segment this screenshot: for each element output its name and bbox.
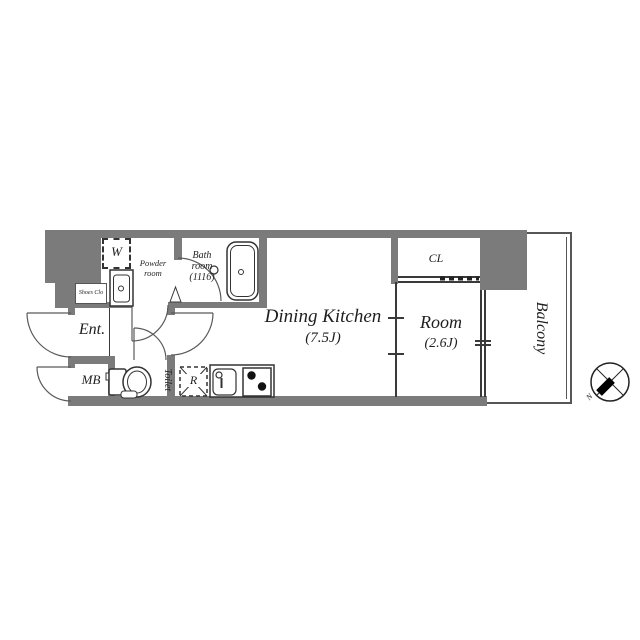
bath-line3: (1116) <box>181 272 223 283</box>
dining-kitchen-size: (7.5J) <box>223 330 423 347</box>
wall-dk-room <box>391 238 398 284</box>
wall-mb-right <box>108 364 115 398</box>
wall-ent-mb-divider <box>68 356 115 364</box>
bath-line1: Bath <box>181 250 223 261</box>
balcony-edge-top <box>527 232 572 234</box>
refrigerator-label: R <box>186 374 201 387</box>
dining-kitchen-name: Dining Kitchen <box>223 306 423 327</box>
meter-box-door-swing <box>37 367 71 401</box>
kitchen-counter <box>210 365 274 397</box>
powder-line2: room <box>133 269 173 279</box>
kitchen-sink <box>213 369 236 395</box>
structural-block-left <box>45 230 101 283</box>
closet-label: CL <box>398 252 474 265</box>
entrance-door-swing <box>27 313 71 357</box>
floor-plan: Shoes Clo W Dining Kitchen (7.5J) Room (… <box>0 0 640 640</box>
compass-north-label: N <box>582 389 598 405</box>
powder-room-label: Powder room <box>133 259 173 278</box>
partition-tick-2 <box>388 353 404 355</box>
bath-room-label: Bath room (1116) <box>181 250 223 284</box>
toilet-label: Toilet <box>155 350 173 410</box>
bath-line2: room <box>181 261 223 272</box>
room-name: Room <box>398 312 484 332</box>
wall-bottom <box>68 396 487 406</box>
bathtub <box>227 242 258 300</box>
wall-bath-right <box>259 238 267 302</box>
wall-hall-stub <box>167 308 175 315</box>
balcony-edge-bottom <box>487 402 572 404</box>
powder-room-door-swing <box>132 305 168 341</box>
closet-slider-line-1 <box>398 276 480 278</box>
dining-kitchen-label: Dining Kitchen (7.5J) <box>223 306 423 347</box>
balcony-edge-right-outer <box>570 232 572 404</box>
dining-kitchen-door-swing <box>171 313 213 355</box>
meter-box-label: MB <box>74 373 108 388</box>
shoes-closet-label: Shoes Clo <box>75 290 107 297</box>
wall-left-seg1 <box>68 308 75 315</box>
closet-slider-line-2 <box>398 281 480 283</box>
entrance-label: Ent. <box>74 321 110 339</box>
room-label: Room (2.6J) <box>398 312 484 352</box>
washer-label: W <box>102 245 131 260</box>
wall-top <box>45 230 527 238</box>
washbasin <box>110 270 133 306</box>
structural-block-right <box>480 230 527 290</box>
balcony-edge-right-inner <box>566 237 567 399</box>
room-size: (2.6J) <box>398 336 484 352</box>
stove <box>243 368 271 396</box>
balcony-label: Balcony <box>522 288 550 368</box>
